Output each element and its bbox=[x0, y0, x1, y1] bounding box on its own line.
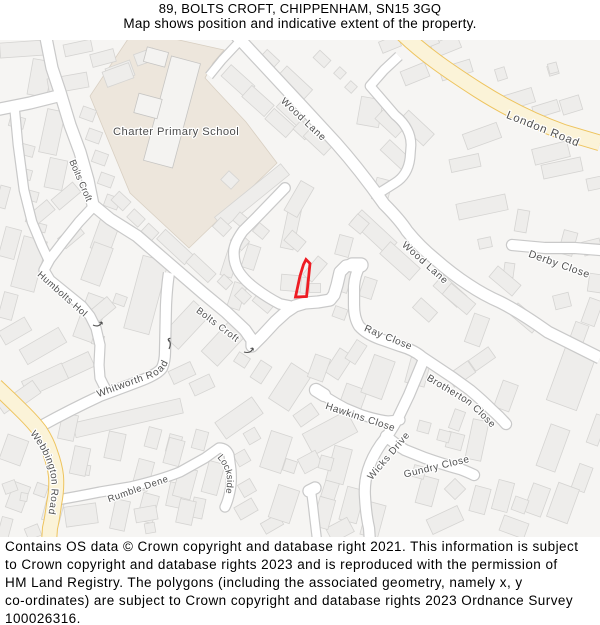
svg-text:Charter Primary School: Charter Primary School bbox=[113, 126, 239, 138]
